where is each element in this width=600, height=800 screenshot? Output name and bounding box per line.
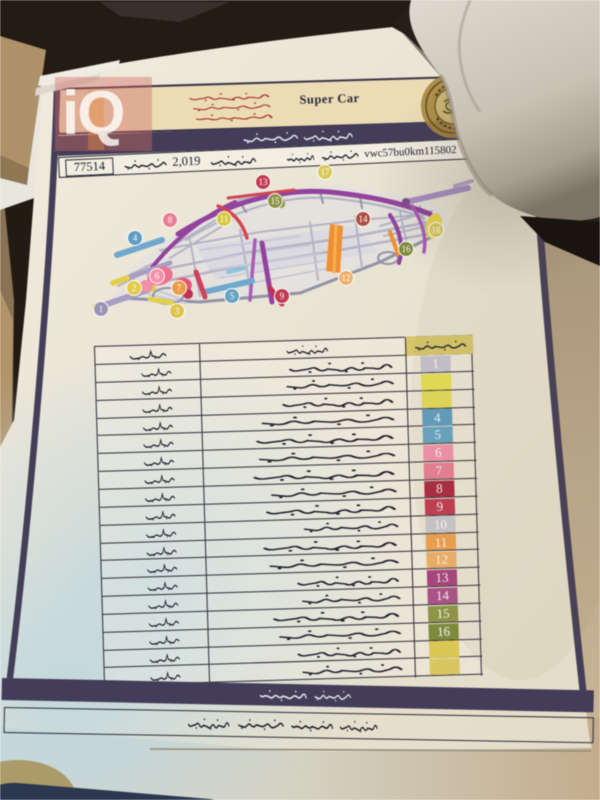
svg-text:7: 7 — [177, 283, 182, 293]
svg-text:11: 11 — [220, 214, 229, 224]
svg-text:8: 8 — [168, 215, 173, 225]
svg-text:12: 12 — [342, 273, 351, 283]
svg-text:4: 4 — [133, 233, 138, 243]
svg-text:5: 5 — [230, 291, 235, 301]
svg-text:1: 1 — [99, 304, 104, 314]
svg-text:17: 17 — [321, 167, 331, 177]
svg-text:3: 3 — [175, 306, 180, 316]
svg-text:15: 15 — [271, 196, 281, 206]
svg-text:6: 6 — [155, 271, 160, 281]
svg-text:9: 9 — [280, 291, 285, 301]
svg-text:14: 14 — [359, 214, 369, 224]
svg-text:2: 2 — [132, 283, 137, 293]
svg-text:13: 13 — [259, 177, 269, 187]
